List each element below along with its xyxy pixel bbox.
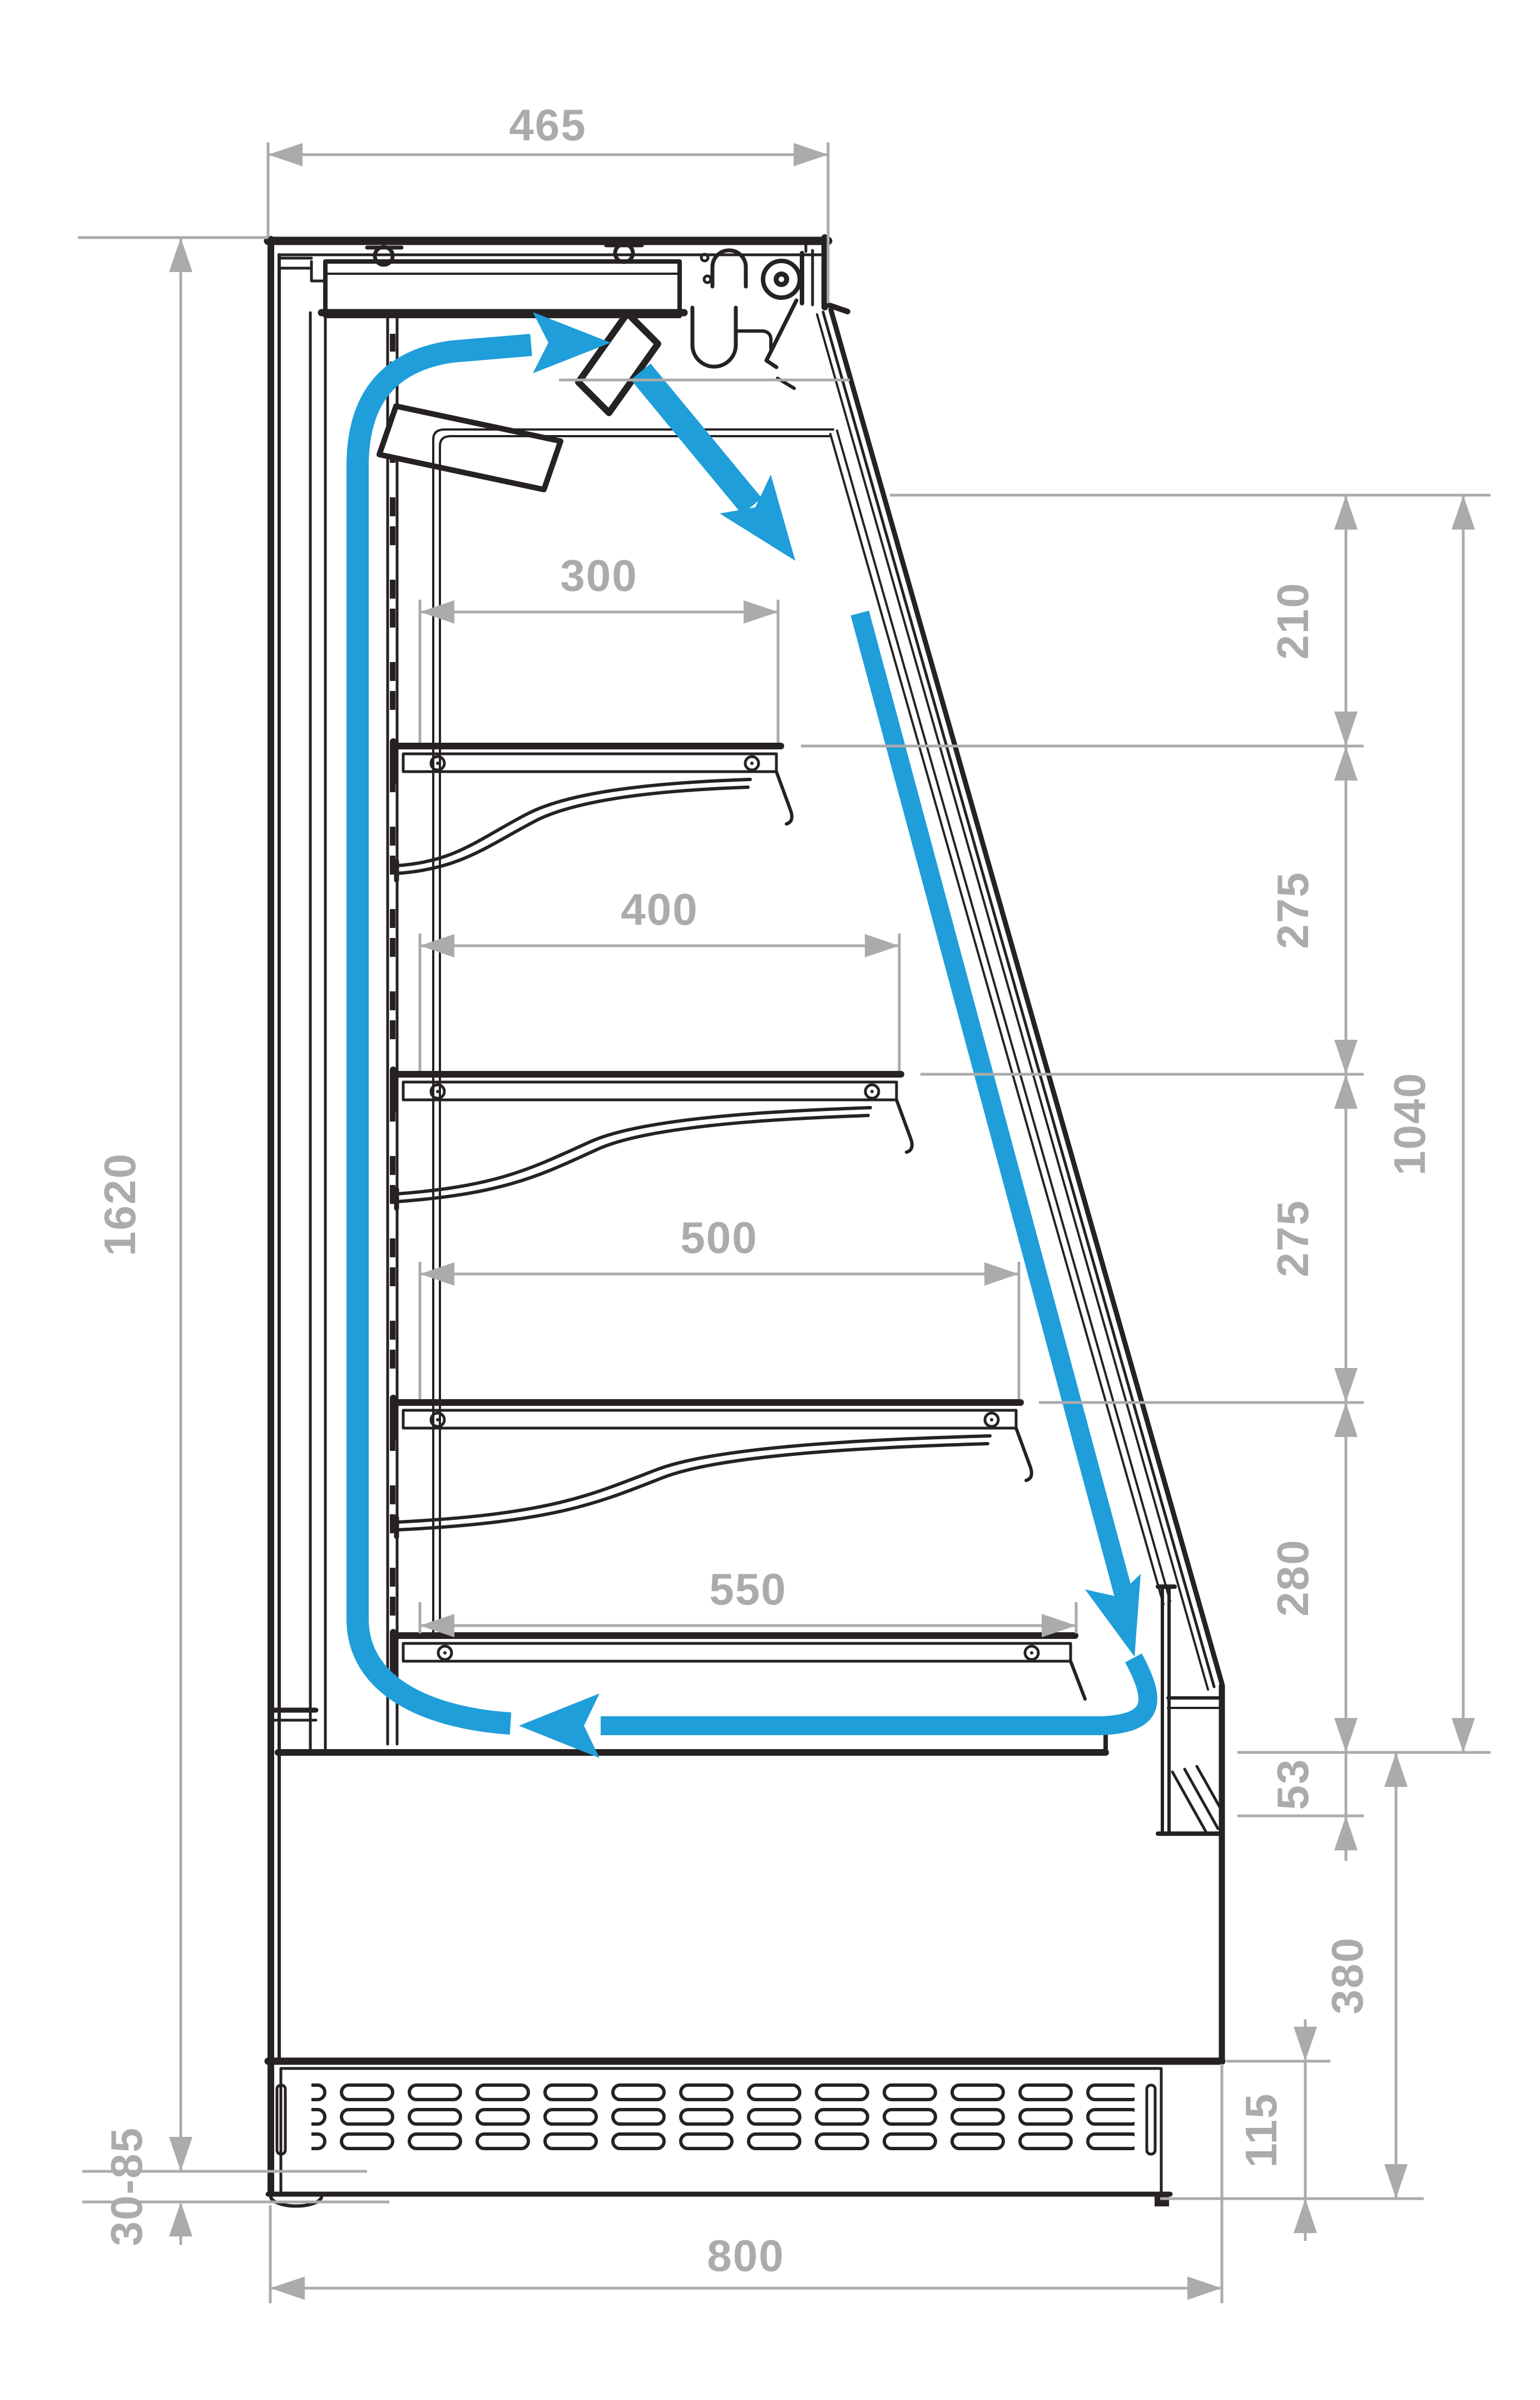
air-deflector-vane	[379, 406, 561, 490]
dimension-labels: 465 1620 300 400 500 550 210 275 275 280…	[95, 100, 1434, 2280]
technical-drawing-page: 465 1620 300 400 500 550 210 275 275 280…	[0, 0, 1540, 2400]
front-glass	[817, 305, 1222, 1690]
dim-plinth-height: 115	[1236, 2092, 1286, 2167]
shelf-1	[393, 742, 792, 880]
fan-icon	[763, 241, 813, 305]
dim-top-width: 465	[509, 100, 586, 150]
dim-seg-275a: 275	[1268, 871, 1318, 949]
vented-plinth	[277, 2068, 1161, 2194]
dim-seg-280: 280	[1268, 1539, 1318, 1616]
airflow-discharge-band	[641, 372, 752, 506]
airflow-back-duct	[358, 345, 531, 1724]
airflow-return-band	[601, 1658, 1148, 1726]
bottom-deck	[393, 1632, 1085, 1699]
airflow-arrow-return-icon	[519, 1693, 600, 1758]
dim-seg-275b: 275	[1268, 1199, 1318, 1277]
dim-depth-total: 800	[707, 2231, 784, 2280]
dim-base-height: 380	[1323, 1937, 1372, 2014]
dim-shelf-3: 500	[680, 1213, 757, 1262]
dim-foot-range: 30-85	[102, 2127, 151, 2246]
display-case-diagram: 465 1620 300 400 500 550 210 275 275 280…	[0, 0, 1540, 2400]
dim-shelf-2: 400	[621, 885, 698, 934]
dim-seg-210: 210	[1268, 582, 1318, 659]
return-air-grille	[1172, 1766, 1222, 1831]
shelf-2	[393, 1070, 912, 1208]
lamp-housing	[321, 261, 684, 316]
dim-right-total: 1040	[1385, 1072, 1434, 1176]
shelf-3	[393, 1398, 1032, 1537]
dim-shelf-1: 300	[560, 551, 637, 600]
refrigerant-pipes	[692, 250, 771, 367]
dim-shelf-4: 550	[709, 1564, 786, 1614]
dim-front-gap: 53	[1268, 1759, 1318, 1810]
dim-total-height: 1620	[95, 1153, 145, 1256]
back-wall	[271, 239, 325, 2194]
